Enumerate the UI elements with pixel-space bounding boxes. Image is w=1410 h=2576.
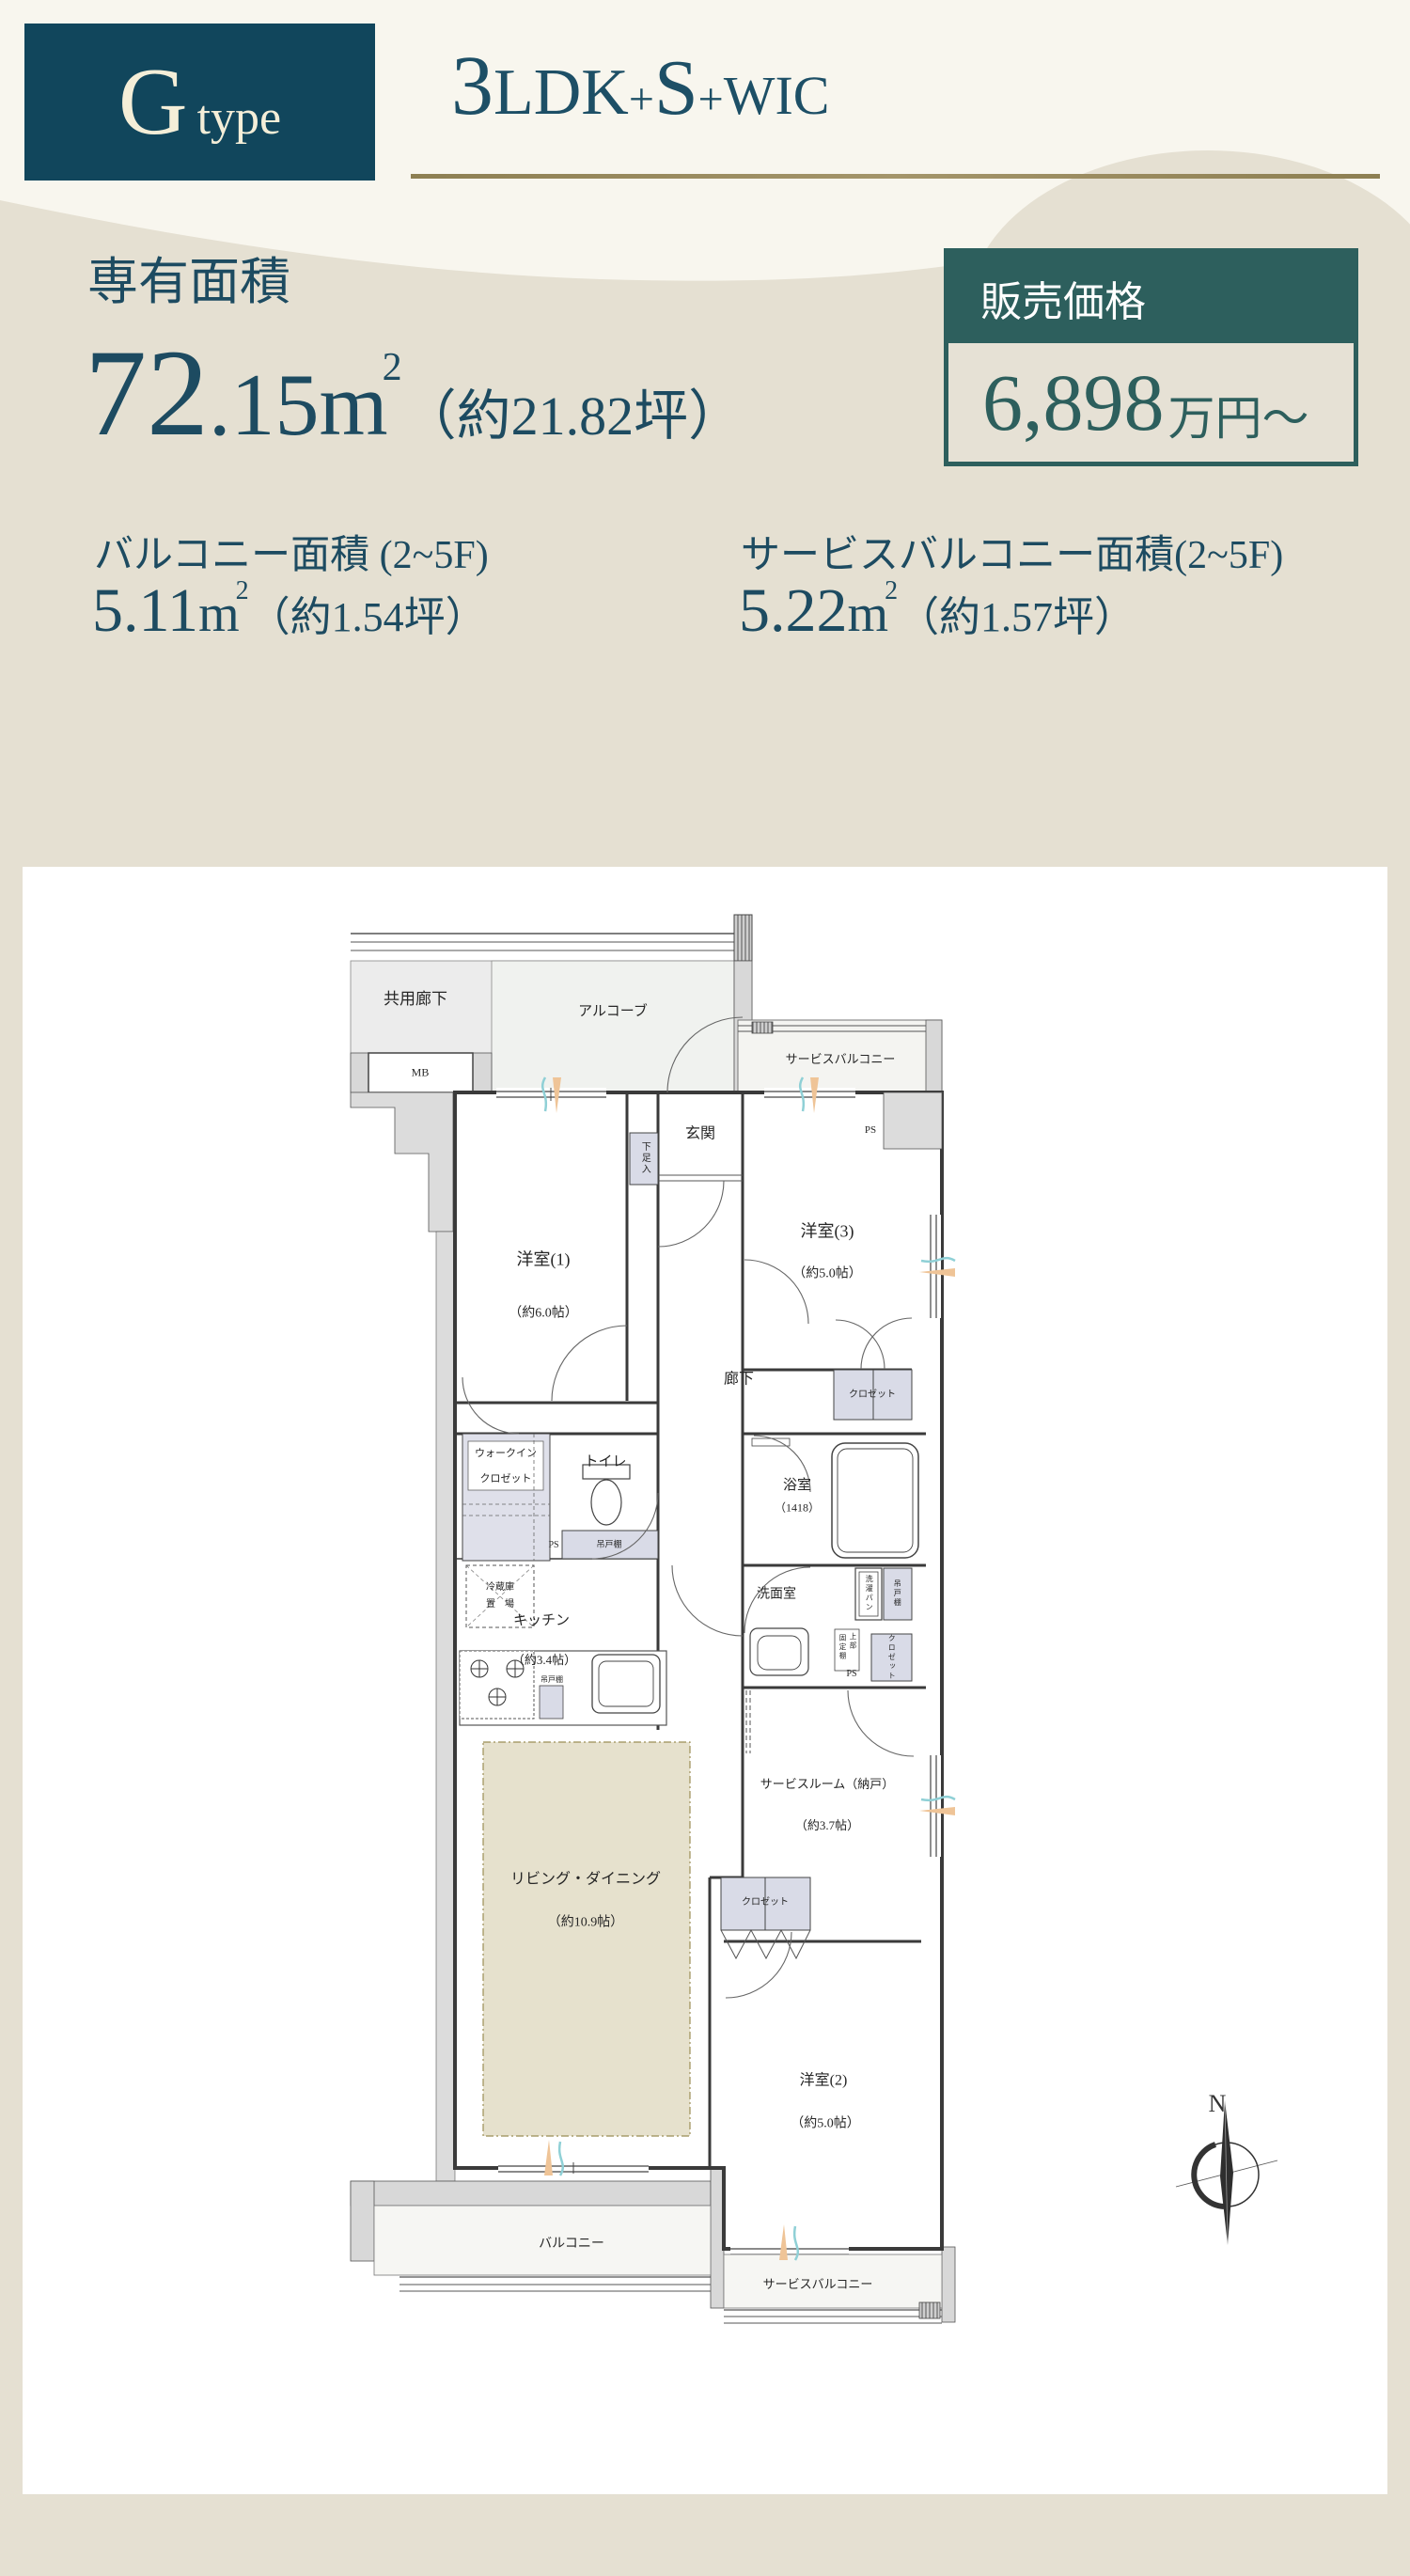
- area-value: 72.15m2（約21.82坪）: [85, 331, 743, 456]
- plan-label-genkan: 玄関: [685, 1127, 715, 1143]
- plan-label-senmen: 洗面室: [757, 1589, 796, 1603]
- compass: N: [1170, 2085, 1283, 2250]
- service-balcony-unit: m: [848, 585, 889, 643]
- living-dining-floor: [483, 1742, 690, 2136]
- balcony-area-value: 5.11m2（約1.54坪）: [92, 575, 487, 647]
- plan-label-yoshitsu1: 洋室(1): [517, 1251, 571, 1269]
- plan-label-service-balcony-bottom: サービスバルコニー: [763, 2278, 873, 2291]
- plan-label-service-room: サービスルーム（納戸）: [760, 1778, 895, 1791]
- plan-label-yoshitsu2-size: （約5.0帖）: [791, 2118, 860, 2132]
- heading-wic: WIC: [724, 65, 830, 126]
- type-badge-letter: G: [118, 55, 188, 150]
- price-header: 販売価格: [948, 253, 1354, 343]
- plan-label-yoshitsu3: 洋室(3): [801, 1223, 854, 1241]
- price-suffix: 万円〜: [1168, 381, 1309, 448]
- plan-label-sentaku-pan: 洗濯パン: [865, 1575, 872, 1612]
- price-value-row: 6,898 万円〜: [948, 343, 1354, 462]
- plan-label-ps-laundry: PS: [846, 1670, 856, 1680]
- ps-pocket: [884, 1092, 942, 1149]
- plan-label-alcove: アルコーブ: [578, 1005, 648, 1020]
- compass-needle: [1220, 2100, 1233, 2245]
- floorplan-drawing: [320, 903, 978, 2350]
- balcony-tsubo: （約1.54坪）: [249, 594, 487, 640]
- plan-label-mb: MB: [412, 1067, 430, 1079]
- heading-ldk: LDK: [493, 56, 629, 129]
- area-unit: m: [320, 356, 388, 454]
- area-dec: .15: [209, 356, 320, 454]
- compass-n-label: N: [1209, 2090, 1227, 2117]
- plan-label-tsuridana-kitchen: 吊戸棚: [540, 1676, 563, 1684]
- plan-label-jobu: 上部: [849, 1633, 856, 1651]
- plan-label-bath: 浴室: [783, 1479, 811, 1494]
- plan-label-wic-line2: クロゼット: [480, 1474, 532, 1485]
- floorplan: 共用廊下MBアルコーブサービスバルコニーPS玄関下足入洋室(1)（約6.0帖）洋…: [320, 903, 978, 2350]
- heading-s: S: [654, 44, 698, 132]
- plan-label-ps-wic: PS: [548, 1541, 558, 1551]
- heading-plus1: +: [629, 74, 654, 124]
- plan-label-kitchen-size: （約3.4帖）: [512, 1654, 576, 1667]
- service-balcony-area-value: 5.22m2（約1.57坪）: [739, 575, 1136, 647]
- plan-label-closet-laundry: クロゼット: [887, 1634, 895, 1681]
- service-balcony-tsubo: （約1.57坪）: [898, 594, 1136, 640]
- plan-label-kyoyo-roka: 共用廊下: [384, 991, 447, 1008]
- plan-label-reizoko-line1: 冷蔵庫: [486, 1583, 514, 1594]
- price-box: 販売価格 6,898 万円〜: [944, 248, 1358, 466]
- balcony-area-label: バルコニー面積 (2~5F): [94, 523, 489, 580]
- plan-label-balcony: バルコニー: [539, 2238, 604, 2253]
- area-unit-sup: 2: [383, 346, 402, 389]
- plan-label-closet2: クロゼット: [742, 1898, 789, 1908]
- area-tsubo: （約21.82坪）: [402, 385, 744, 447]
- service-balcony-area-label: サービスバルコニー面積(2~5F): [741, 523, 1283, 580]
- plan-label-service-room-size: （約3.7帖）: [795, 1819, 859, 1832]
- plan-label-kitchen: キッチン: [513, 1614, 570, 1629]
- plan-label-ps-top: PS: [865, 1125, 876, 1137]
- balcony-unit: m: [198, 585, 240, 643]
- kitchen-shelf: [540, 1686, 563, 1719]
- plan-label-bath-size: （1418）: [775, 1502, 820, 1515]
- area-label: 専有面積: [87, 240, 290, 314]
- type-badge: G type: [24, 24, 375, 181]
- plan-label-service-balcony-top: サービスバルコニー: [786, 1053, 896, 1066]
- service-balcony-unit-sup: 2: [885, 576, 898, 605]
- service-balcony-int: 5.22: [739, 576, 848, 645]
- plan-label-kotei-dana: 固定棚: [838, 1634, 846, 1661]
- price-label: 販売価格: [980, 268, 1146, 328]
- kitchen-sink: [592, 1655, 660, 1713]
- plan-label-roka: 廊下: [724, 1373, 754, 1389]
- bathtub: [832, 1443, 918, 1558]
- plan-label-toilet: トイレ: [584, 1455, 626, 1470]
- plan-label-tsuridana-laundry: 吊戸棚: [893, 1579, 901, 1608]
- plan-label-yoshitsu2: 洋室(2): [800, 2074, 848, 2090]
- alcove-floor: [492, 961, 734, 1092]
- type-badge-word: type: [197, 90, 282, 146]
- area-int: 72: [85, 323, 209, 462]
- heading-3: 3: [451, 39, 493, 133]
- flyer-page: { "badge": {"big": "G", "small": "type"}…: [0, 0, 1410, 2576]
- gold-divider: [411, 174, 1380, 179]
- plan-label-reizoko-line2: 置 場: [486, 1600, 514, 1610]
- balcony-int: 5.11: [92, 576, 198, 645]
- balcony-unit-sup: 2: [236, 576, 249, 605]
- heading-plus2: +: [698, 74, 724, 124]
- plan-label-closet3: クロゼット: [849, 1390, 896, 1401]
- plan-label-tsuridana-toilet: 吊戸棚: [596, 1540, 621, 1548]
- layout-heading: 3LDK+S+WIC: [451, 38, 830, 134]
- plan-label-living-dining-size: （約10.9帖）: [548, 1917, 624, 1931]
- plan-label-living-dining: リビング・ダイニング: [510, 1873, 661, 1889]
- plan-label-getabako: 下足入: [639, 1141, 650, 1175]
- price-value: 6,898: [982, 362, 1165, 443]
- vanity: [750, 1628, 808, 1675]
- plan-label-yoshitsu1-size: （約6.0帖）: [509, 1308, 578, 1322]
- plan-label-wic-line1: ウォークイン: [475, 1449, 537, 1460]
- plan-label-yoshitsu3-size: （約5.0帖）: [792, 1268, 862, 1282]
